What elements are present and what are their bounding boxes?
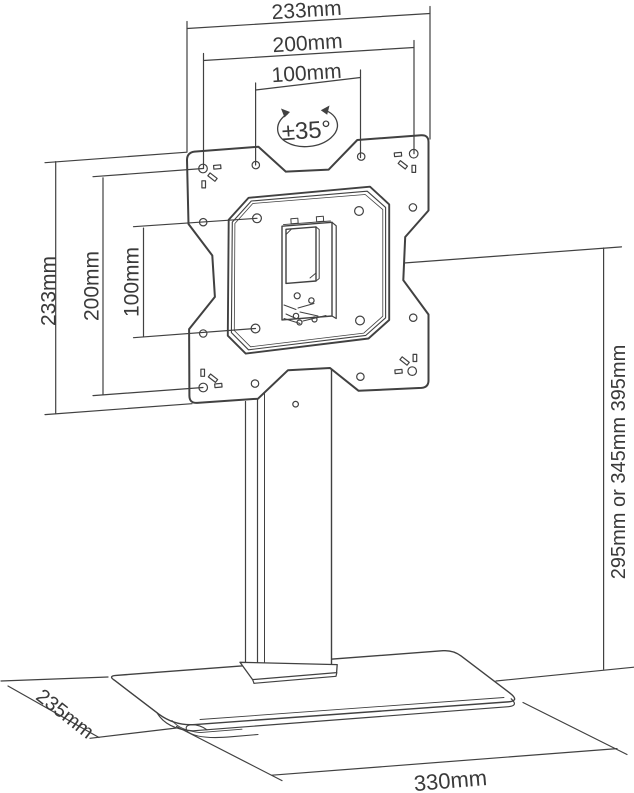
svg-text:100mm: 100mm	[121, 247, 144, 317]
svg-text:200mm: 200mm	[81, 251, 104, 321]
svg-text:295mm or 345mm 395mm: 295mm or 345mm 395mm	[608, 345, 630, 580]
svg-text:200mm: 200mm	[272, 30, 343, 57]
svg-text:100mm: 100mm	[271, 60, 342, 87]
svg-text:233mm: 233mm	[38, 256, 61, 326]
svg-text:±35°: ±35°	[281, 116, 332, 146]
